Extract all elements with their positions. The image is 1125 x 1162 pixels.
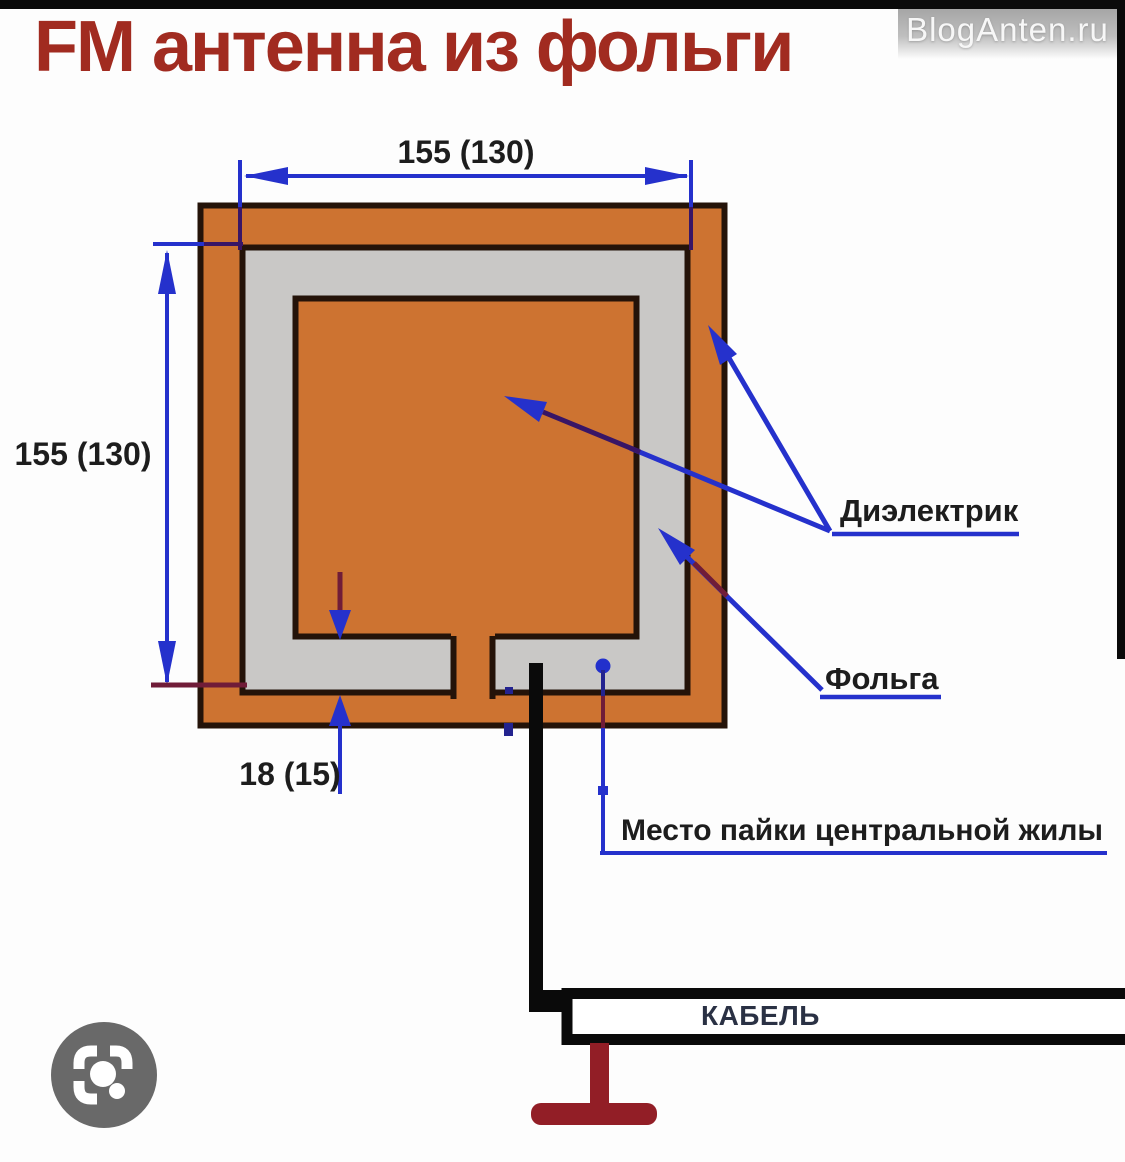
cable-box [567, 994, 1125, 1040]
lens-icon[interactable] [51, 1022, 157, 1128]
right-letterbox-bar [1117, 0, 1125, 659]
foil-inner-hole [296, 299, 637, 637]
watermark-text: BlogAnten.ru [906, 9, 1109, 50]
screenshot-canvas: FM антенна из фольги BlogAnten.ru 155 (1… [0, 0, 1125, 1162]
cable-label: КАБЕЛЬ [701, 1002, 820, 1030]
dimension-gap-label: 18 (15) [235, 758, 345, 790]
solder-point-label: Место пайки центральной жилы [621, 816, 1103, 846]
dimension-height-label: 155 (130) [8, 438, 158, 470]
page-title: FM антенна из фольги [34, 6, 934, 89]
watermark-badge: BlogAnten.ru [898, 9, 1117, 59]
connector-t-shape [531, 1043, 657, 1125]
foil-label: Фольга [825, 663, 939, 694]
foil-gap [451, 633, 495, 699]
dielectric-label: Диэлектрик [840, 495, 1018, 526]
dimension-width-label: 155 (130) [346, 136, 586, 168]
antenna-diagram [0, 0, 1125, 1162]
